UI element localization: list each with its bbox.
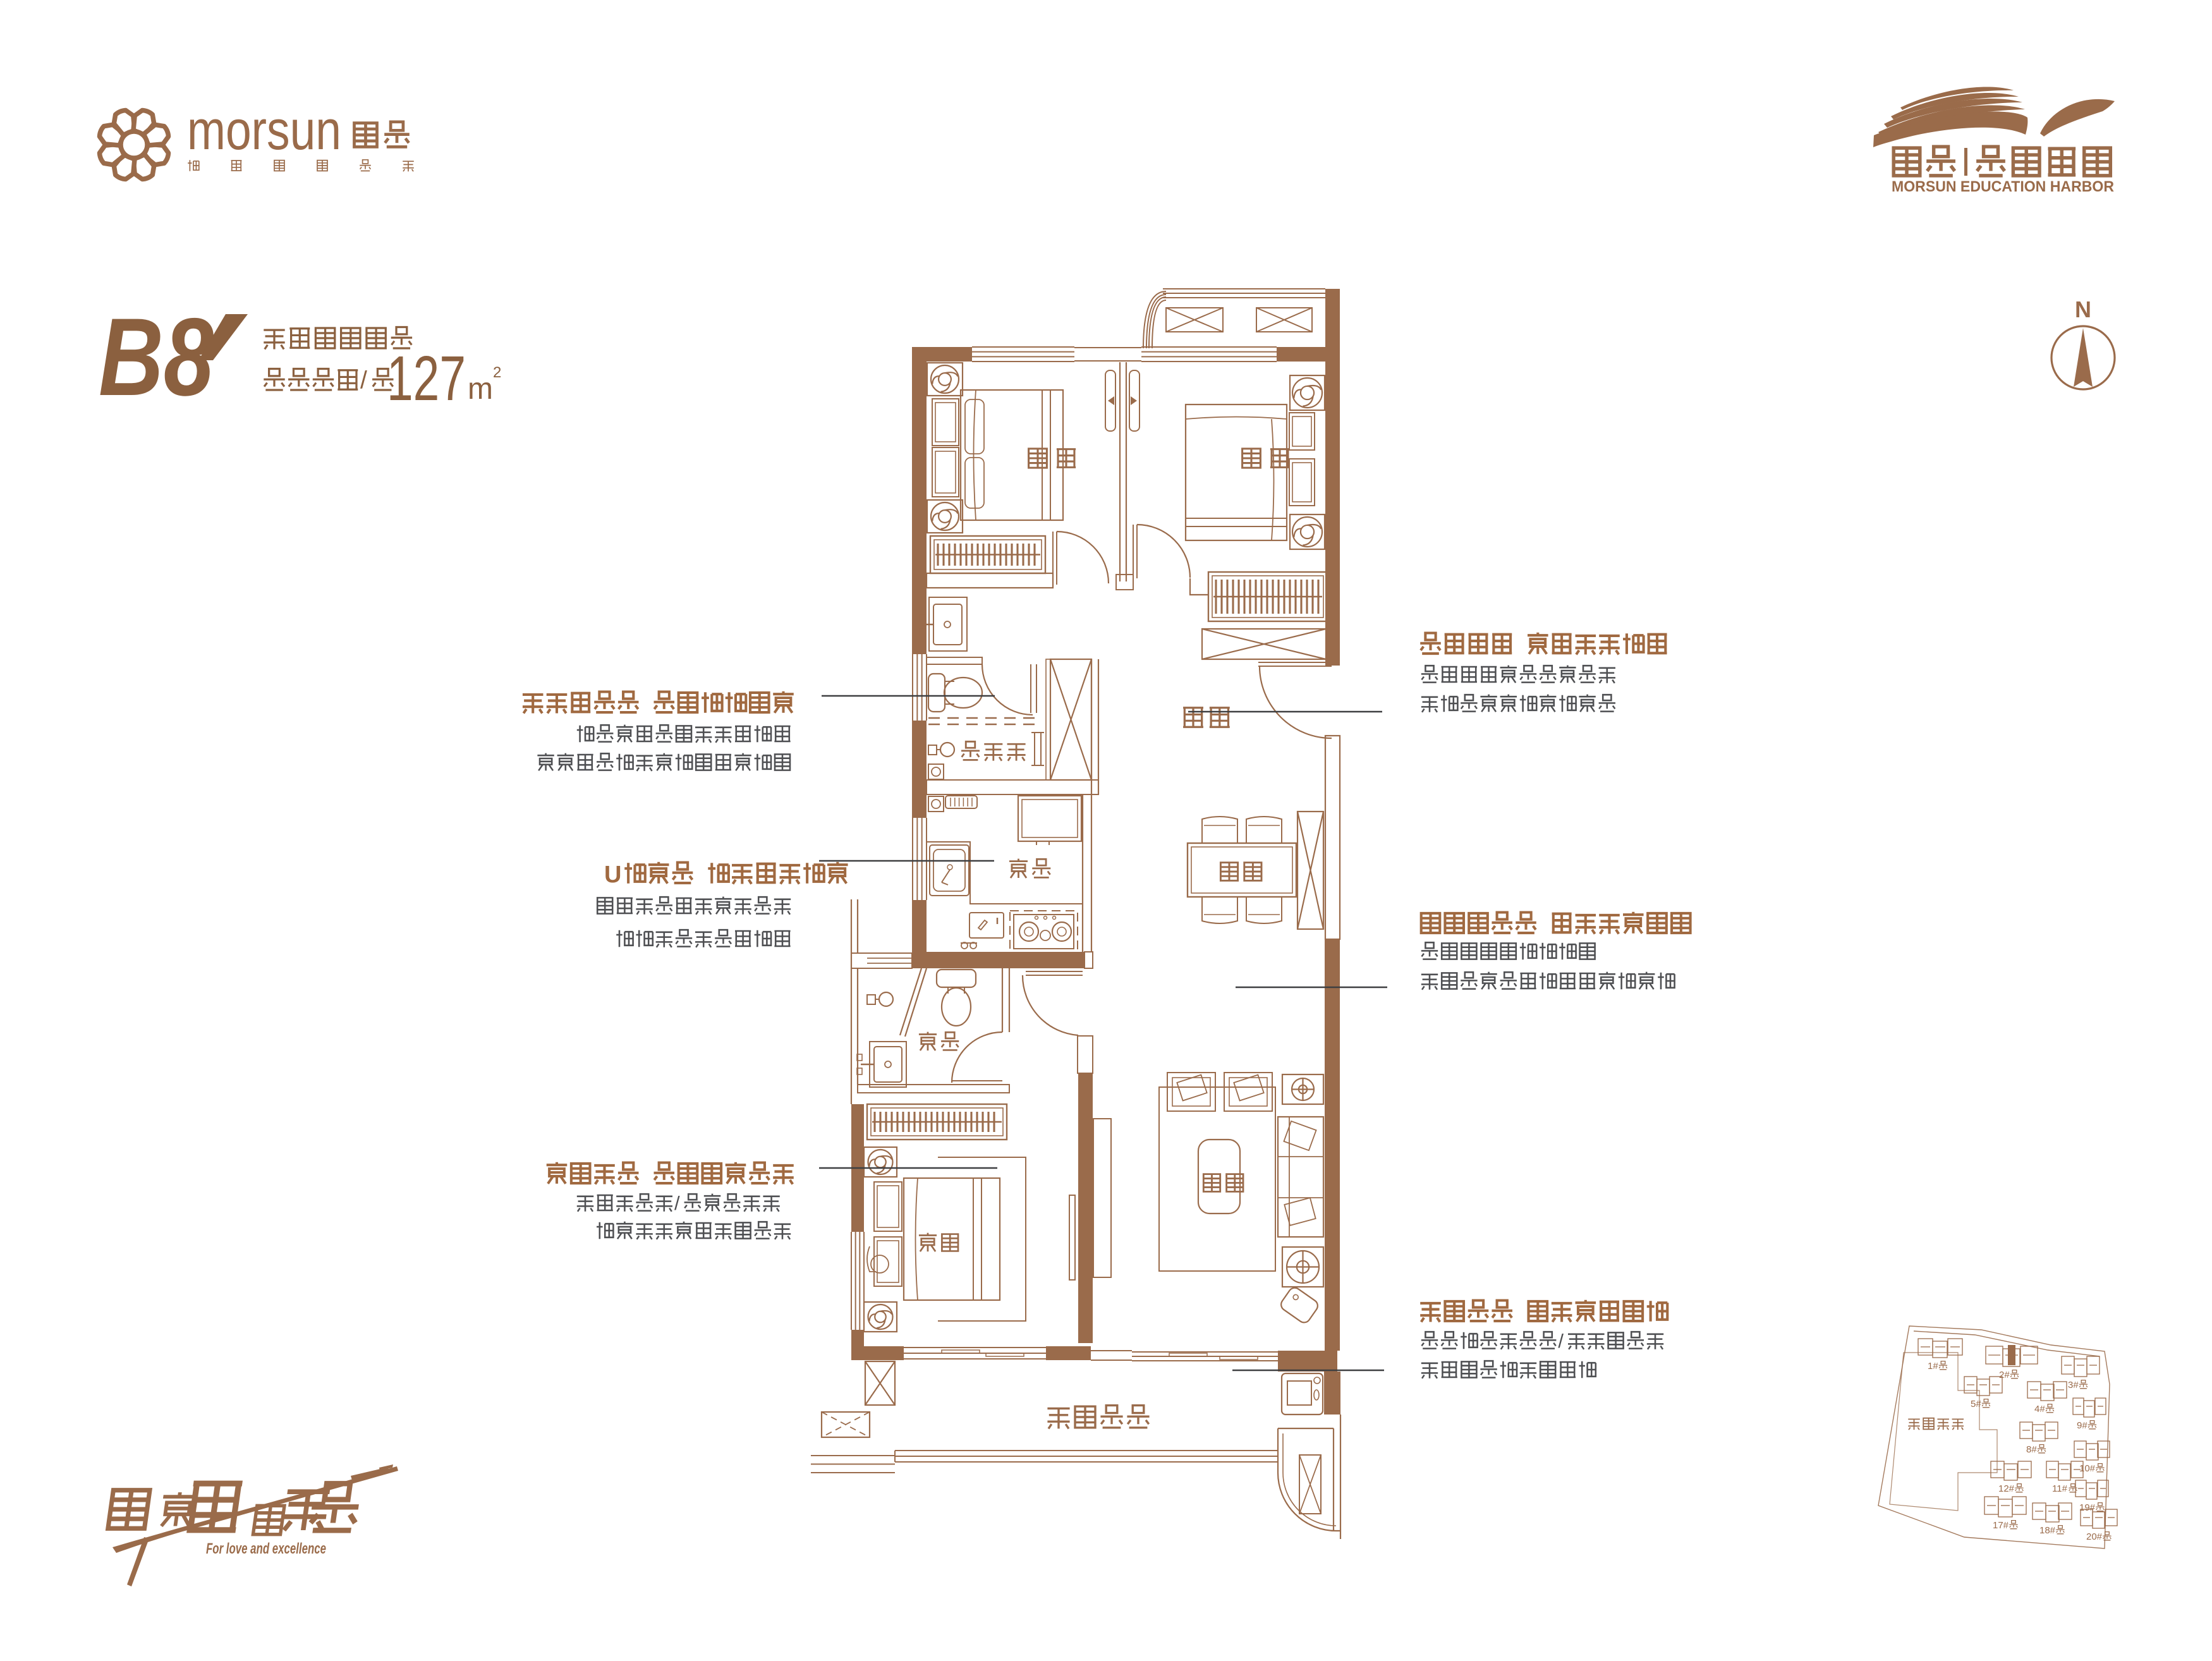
- svg-text:MORSUN EDUCATION HARBOR: MORSUN EDUCATION HARBOR: [1892, 178, 2114, 195]
- svg-text:U: U: [604, 861, 621, 888]
- svg-text:B8: B8: [99, 296, 214, 419]
- svg-text:/: /: [674, 1192, 680, 1214]
- svg-text:20#: 20#: [2086, 1531, 2103, 1542]
- svg-text:17#: 17#: [1993, 1520, 2009, 1531]
- svg-text:3#: 3#: [2068, 1380, 2079, 1390]
- svg-text:11#: 11#: [2052, 1483, 2068, 1494]
- svg-text:2#: 2#: [1999, 1370, 2010, 1380]
- svg-text:1#: 1#: [1928, 1361, 1938, 1372]
- svg-text:/: /: [1558, 1330, 1564, 1352]
- svg-text:18#: 18#: [2039, 1525, 2056, 1536]
- svg-text:4#: 4#: [2034, 1404, 2045, 1415]
- svg-text:127: 127: [387, 343, 466, 414]
- svg-text:N: N: [2075, 296, 2091, 322]
- svg-text:For love and excellence: For love and excellence: [206, 1540, 326, 1557]
- svg-text:9#: 9#: [2077, 1420, 2087, 1431]
- svg-text:8#: 8#: [2026, 1444, 2037, 1455]
- svg-text:morsun: morsun: [187, 99, 341, 161]
- svg-text:2: 2: [493, 364, 501, 381]
- svg-text:m: m: [468, 372, 493, 406]
- svg-text:5#: 5#: [1971, 1399, 1981, 1409]
- svg-text:12#: 12#: [1998, 1483, 2015, 1494]
- svg-text:/: /: [360, 367, 367, 394]
- svg-text:10#: 10#: [2079, 1463, 2096, 1474]
